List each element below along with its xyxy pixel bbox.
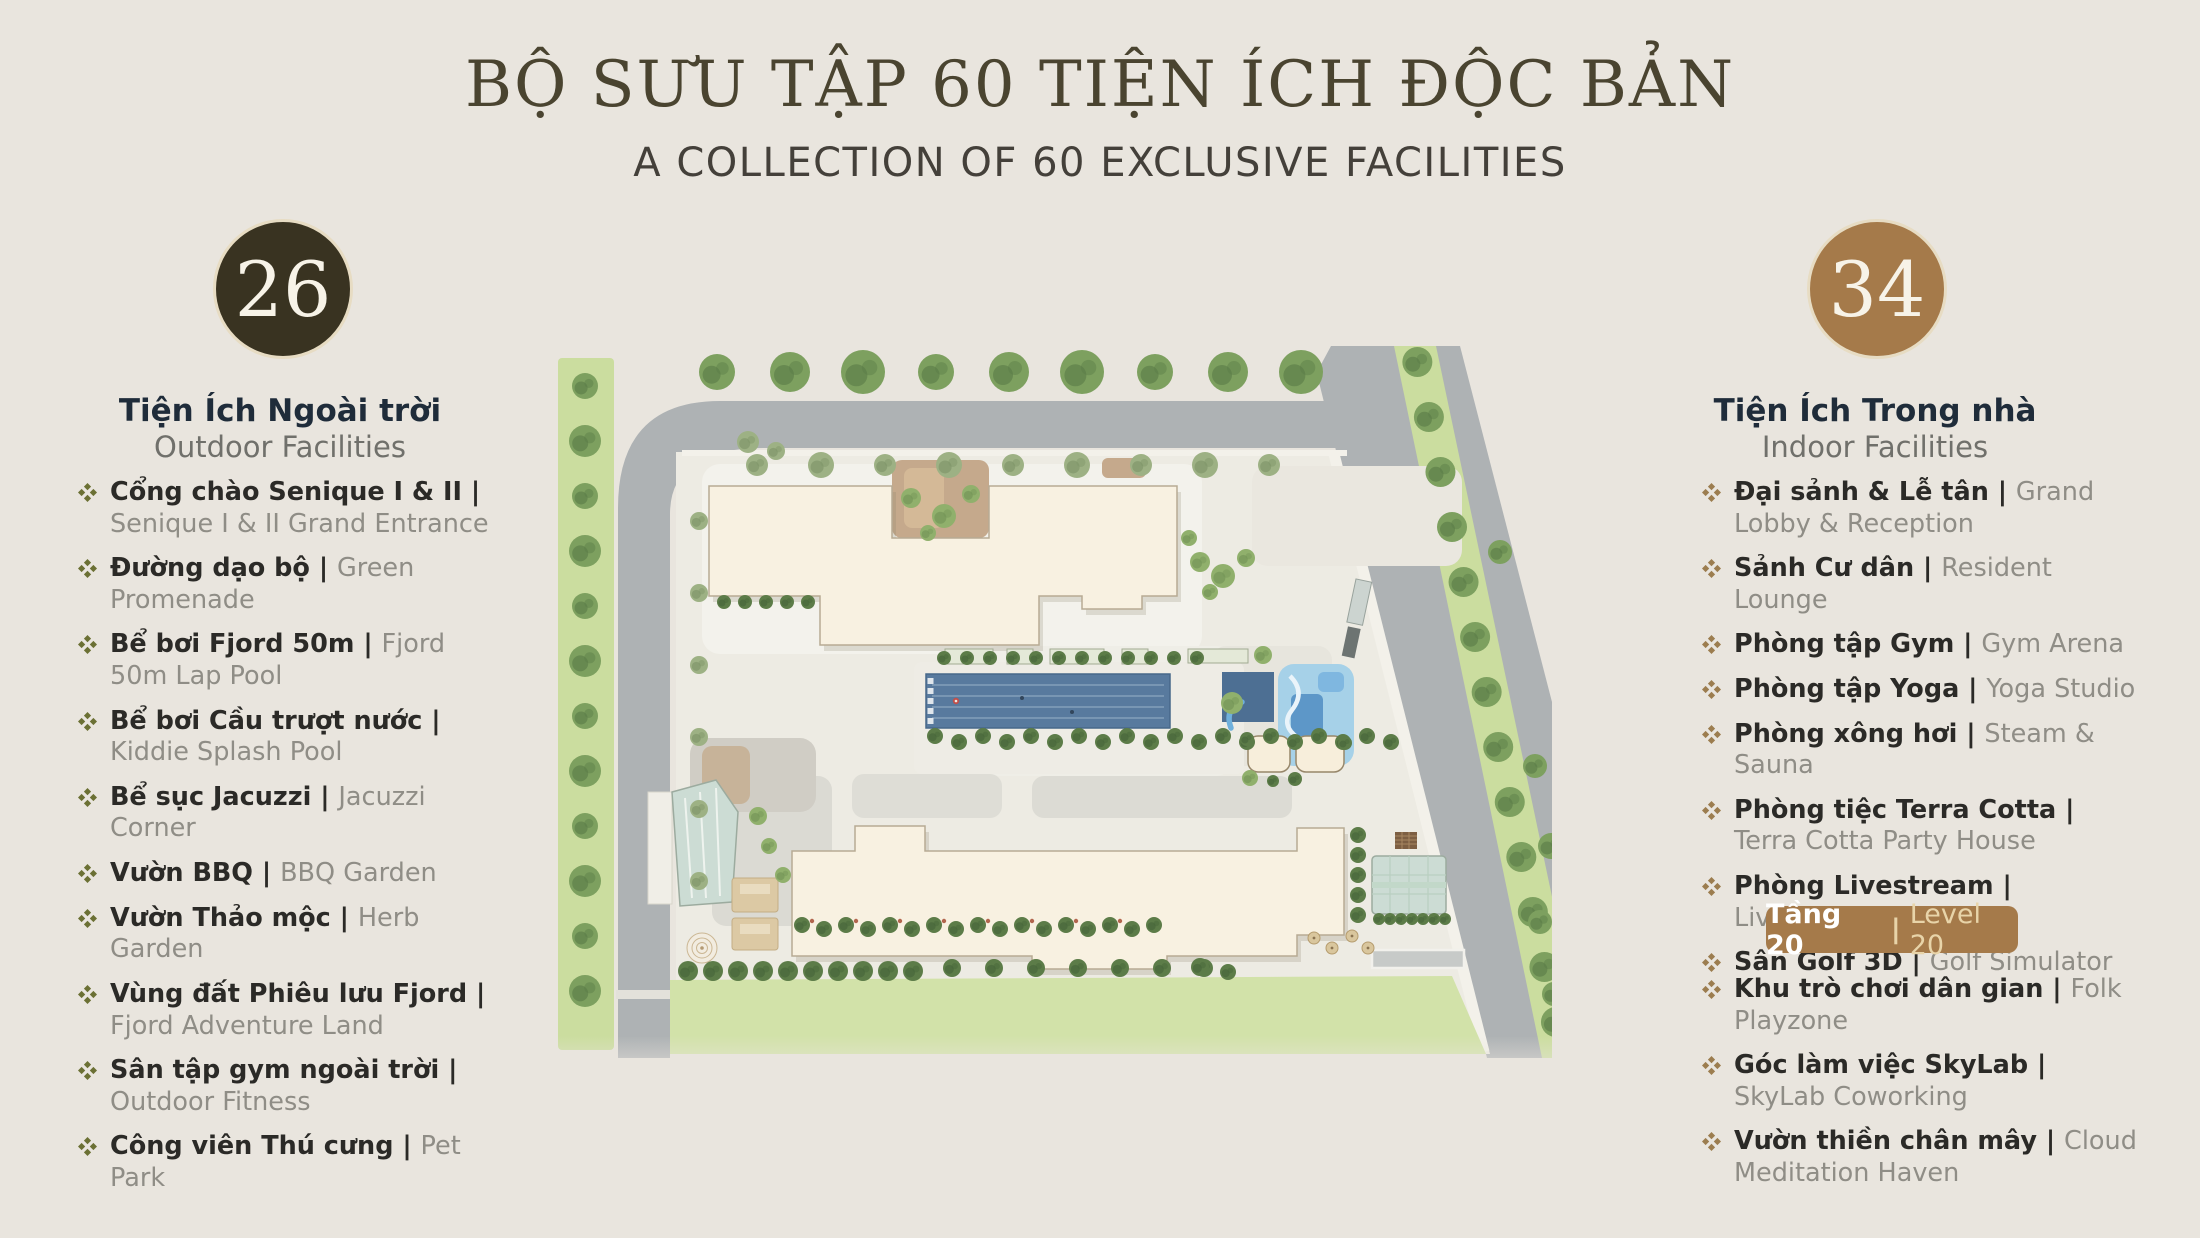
diamond-bullet-icon	[78, 864, 97, 883]
site-plan-map	[552, 346, 1552, 1128]
facility-item: Vườn Thảo mộc | Herb Garden	[78, 903, 502, 966]
reflecting-pool	[1372, 950, 1464, 968]
facility-label: Đường dạo bộ | Green Promenade	[110, 553, 502, 616]
facility-label: Bể sục Jacuzzi | Jacuzzi Corner	[110, 782, 502, 845]
court-marking	[740, 924, 770, 934]
pool-area-layer	[914, 649, 1354, 774]
facility-item: Bể sục Jacuzzi | Jacuzzi Corner	[78, 782, 502, 845]
indoor-level20-facility-list: Khu trò chơi dân gian | Folk PlayzoneGóc…	[1702, 974, 2140, 1203]
facility-item: Phòng xông hơi | Steam & Sauna	[1702, 719, 2140, 782]
facility-item: Bể bơi Fjord 50m | Fjord 50m Lap Pool	[78, 629, 502, 692]
lap-pool	[926, 674, 1170, 728]
facility-item: Phòng tập Gym | Gym Arena	[1702, 629, 2140, 661]
diamond-bullet-icon	[78, 559, 97, 578]
facility-item: Sảnh Cư dân | Resident Lounge	[1702, 553, 2140, 616]
diamond-bullet-icon	[1702, 483, 1721, 502]
diamond-bullet-icon	[1702, 680, 1721, 699]
level-badge-en: Level 20	[1910, 899, 2018, 961]
facility-label: Phòng tập Gym | Gym Arena	[1734, 629, 2124, 661]
greenhouse-ridge	[1372, 882, 1446, 888]
spiral-center	[700, 946, 704, 950]
swimmer	[1020, 696, 1024, 700]
kiddie-pool	[1318, 672, 1344, 692]
lifebuoy-center	[955, 700, 958, 703]
page-subtitle: A COLLECTION OF 60 EXCLUSIVE FACILITIES	[0, 140, 2200, 186]
page-title: BỘ SƯU TẬP 60 TIỆN ÍCH ĐỘC BẢN	[0, 50, 2200, 120]
level-badge: Tầng 20 | Level 20	[1766, 906, 2018, 953]
diamond-bullet-icon	[1702, 559, 1721, 578]
facility-label: Vùng đất Phiêu lưu Fjord | Fjord Adventu…	[110, 979, 502, 1042]
facility-item: Vùng đất Phiêu lưu Fjord | Fjord Adventu…	[78, 979, 502, 1042]
facility-item: Phòng tập Yoga | Yoga Studio	[1702, 674, 2140, 706]
facility-label: Công viên Thú cưng | Pet Park	[110, 1131, 502, 1194]
court-marking	[740, 884, 770, 894]
facility-item: Đại sảnh & Lễ tân | Grand Lobby & Recept…	[1702, 477, 2140, 540]
diamond-bullet-icon	[78, 1061, 97, 1080]
outdoor-heading-en: Outdoor Facilities	[40, 430, 520, 465]
facility-label: Vườn BBQ | BBQ Garden	[110, 858, 437, 890]
indoor-heading-vi: Tiện Ích Trong nhà	[1635, 394, 2115, 430]
outdoor-facility-list: Cổng chào Senique I & II | Senique I & I…	[78, 477, 502, 1208]
facility-item: Cổng chào Senique I & II | Senique I & I…	[78, 477, 502, 540]
level-badge-separator: |	[1891, 914, 1901, 945]
indoor-heading-en: Indoor Facilities	[1635, 430, 2115, 465]
facility-label: Bể bơi Cầu trượt nước | Kiddie Splash Po…	[110, 706, 502, 769]
facility-label: Bể bơi Fjord 50m | Fjord 50m Lap Pool	[110, 629, 502, 692]
outdoor-count: 26	[235, 245, 332, 334]
facility-item: Sân tập gym ngoài trời | Outdoor Fitness	[78, 1055, 502, 1118]
facility-label: Cổng chào Senique I & II | Senique I & I…	[110, 477, 502, 540]
diamond-bullet-icon	[1702, 980, 1721, 999]
facility-item: Đường dạo bộ | Green Promenade	[78, 553, 502, 616]
facility-label: Vườn Thảo mộc | Herb Garden	[110, 903, 502, 966]
facility-item: Phòng tiệc Terra Cotta | Terra Cotta Par…	[1702, 795, 2140, 858]
facility-label: Sân tập gym ngoài trời | Outdoor Fitness	[110, 1055, 502, 1118]
facility-label: Góc làm việc SkyLab | SkyLab Coworking	[1734, 1050, 2140, 1113]
facility-label: Phòng xông hơi | Steam & Sauna	[1734, 719, 2140, 782]
crosswalk	[616, 990, 672, 999]
outdoor-heading-vi: Tiện Ích Ngoài trời	[40, 394, 520, 430]
diamond-bullet-icon	[78, 635, 97, 654]
facility-item: Góc làm việc SkyLab | SkyLab Coworking	[1702, 1050, 2140, 1113]
diamond-bullet-icon	[1702, 801, 1721, 820]
facility-label: Phòng tiệc Terra Cotta | Terra Cotta Par…	[1734, 795, 2140, 858]
facility-item: Bể bơi Cầu trượt nước | Kiddie Splash Po…	[78, 706, 502, 769]
diamond-bullet-icon	[1702, 877, 1721, 896]
bottom-fade	[552, 1036, 1552, 1128]
facility-label: Sảnh Cư dân | Resident Lounge	[1734, 553, 2140, 616]
facility-item: Khu trò chơi dân gian | Folk Playzone	[1702, 974, 2140, 1037]
diamond-bullet-icon	[78, 483, 97, 502]
outdoor-heading: Tiện Ích Ngoài trời Outdoor Facilities	[40, 394, 520, 464]
entrance-wing	[648, 792, 672, 904]
sport-court	[732, 878, 778, 912]
diamond-bullet-icon	[78, 1137, 97, 1156]
facility-label: Phòng tập Yoga | Yoga Studio	[1734, 674, 2135, 706]
facility-label: Đại sảnh & Lễ tân | Grand Lobby & Recept…	[1734, 477, 2140, 540]
indoor-count-badge: 34	[1807, 219, 1947, 359]
diamond-bullet-icon	[1702, 725, 1721, 744]
diamond-bullet-icon	[1702, 1132, 1721, 1151]
facility-item: Vườn thiền chân mây | Cloud Meditation H…	[1702, 1126, 2140, 1189]
diamond-bullet-icon	[78, 909, 97, 928]
swimmer	[1070, 710, 1074, 714]
diamond-bullet-icon	[1702, 1056, 1721, 1075]
diamond-bullet-icon	[78, 985, 97, 1004]
diamond-bullet-icon	[78, 712, 97, 731]
facility-label: Vườn thiền chân mây | Cloud Meditation H…	[1734, 1126, 2140, 1189]
diamond-bullet-icon	[78, 788, 97, 807]
indoor-count: 34	[1829, 245, 1926, 334]
facility-item: Vườn BBQ | BBQ Garden	[78, 858, 502, 890]
outdoor-count-badge: 26	[213, 219, 353, 359]
indoor-heading: Tiện Ích Trong nhà Indoor Facilities	[1635, 394, 2115, 464]
diamond-bullet-icon	[1702, 635, 1721, 654]
level-badge-vi: Tầng 20	[1766, 899, 1882, 961]
facility-label: Khu trò chơi dân gian | Folk Playzone	[1734, 974, 2140, 1037]
facility-item: Công viên Thú cưng | Pet Park	[78, 1131, 502, 1194]
diamond-bullet-icon	[1702, 953, 1721, 972]
paving-patch	[852, 774, 1002, 818]
